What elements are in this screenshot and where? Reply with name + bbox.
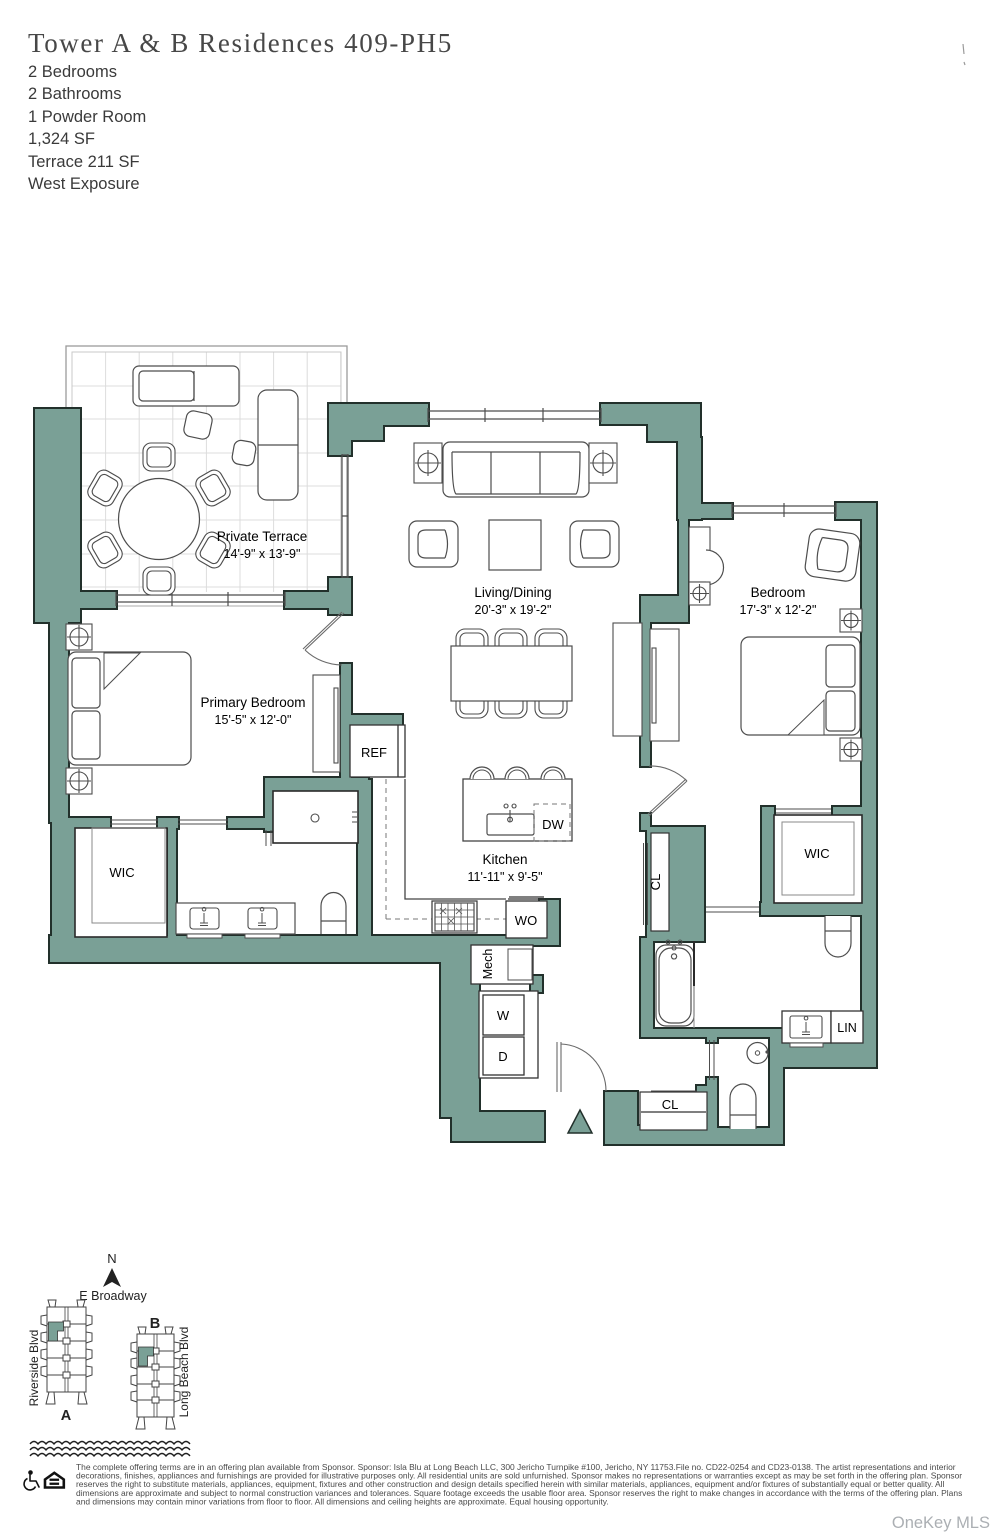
svg-text:WIC: WIC xyxy=(804,846,829,861)
svg-text:Living/Dining: Living/Dining xyxy=(474,585,551,600)
svg-text:14'-9" x 13'-9": 14'-9" x 13'-9" xyxy=(224,547,301,561)
svg-text:LIN: LIN xyxy=(837,1021,856,1035)
svg-text:W: W xyxy=(497,1008,510,1023)
svg-text:DW: DW xyxy=(542,817,564,832)
svg-text:15'-5" x 12'-0": 15'-5" x 12'-0" xyxy=(215,713,292,727)
svg-text:WIC: WIC xyxy=(109,865,134,880)
svg-text:OneKey MLS: OneKey MLS xyxy=(892,1514,990,1532)
svg-text:A: A xyxy=(61,1408,72,1424)
svg-text:11'-11" x 9'-5": 11'-11" x 9'-5" xyxy=(467,870,542,884)
svg-text:2 Bedrooms: 2 Bedrooms xyxy=(28,63,117,81)
svg-text:Bedroom: Bedroom xyxy=(751,585,806,600)
svg-text:Riverside Blvd: Riverside Blvd xyxy=(27,1330,41,1407)
svg-text:Tower A & B Residences 409-PH5: Tower A & B Residences 409-PH5 xyxy=(28,28,453,58)
svg-text:17'-3" x 12'-2": 17'-3" x 12'-2" xyxy=(740,603,817,617)
svg-text:WO: WO xyxy=(515,913,537,928)
svg-text:Primary Bedroom: Primary Bedroom xyxy=(200,695,305,710)
svg-text:N: N xyxy=(107,1251,116,1266)
svg-text:E Broadway: E Broadway xyxy=(79,1289,147,1303)
svg-text:D: D xyxy=(498,1049,507,1064)
svg-text:Mech: Mech xyxy=(481,949,495,980)
svg-text:20'-3" x 19'-2": 20'-3" x 19'-2" xyxy=(475,603,552,617)
svg-text:CL: CL xyxy=(662,1097,679,1112)
svg-text:Terrace 211 SF: Terrace 211 SF xyxy=(28,153,140,171)
svg-text:1,324 SF: 1,324 SF xyxy=(28,130,95,148)
svg-text:and dimensions may contain min: and dimensions may contain minor variati… xyxy=(76,1496,609,1506)
svg-text:1 Powder Room: 1 Powder Room xyxy=(28,108,146,126)
svg-text:CL: CL xyxy=(648,874,663,891)
svg-text:2 Bathrooms: 2 Bathrooms xyxy=(28,85,122,103)
svg-text:B: B xyxy=(150,1316,160,1332)
svg-text:Long Beach Blvd: Long Beach Blvd xyxy=(177,1327,191,1418)
svg-text:Private Terrace: Private Terrace xyxy=(217,529,308,544)
svg-text:Kitchen: Kitchen xyxy=(482,852,527,867)
svg-text:REF: REF xyxy=(361,745,387,760)
svg-text:West Exposure: West Exposure xyxy=(28,175,140,193)
